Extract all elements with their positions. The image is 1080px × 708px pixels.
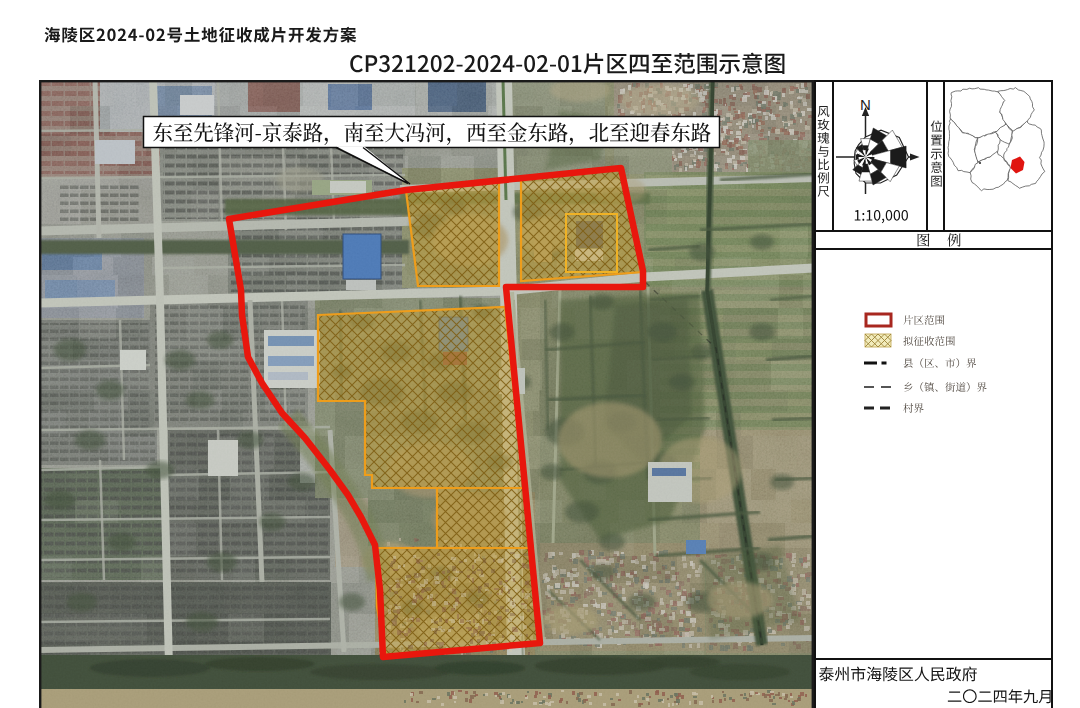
svg-text:N: N xyxy=(860,96,871,113)
